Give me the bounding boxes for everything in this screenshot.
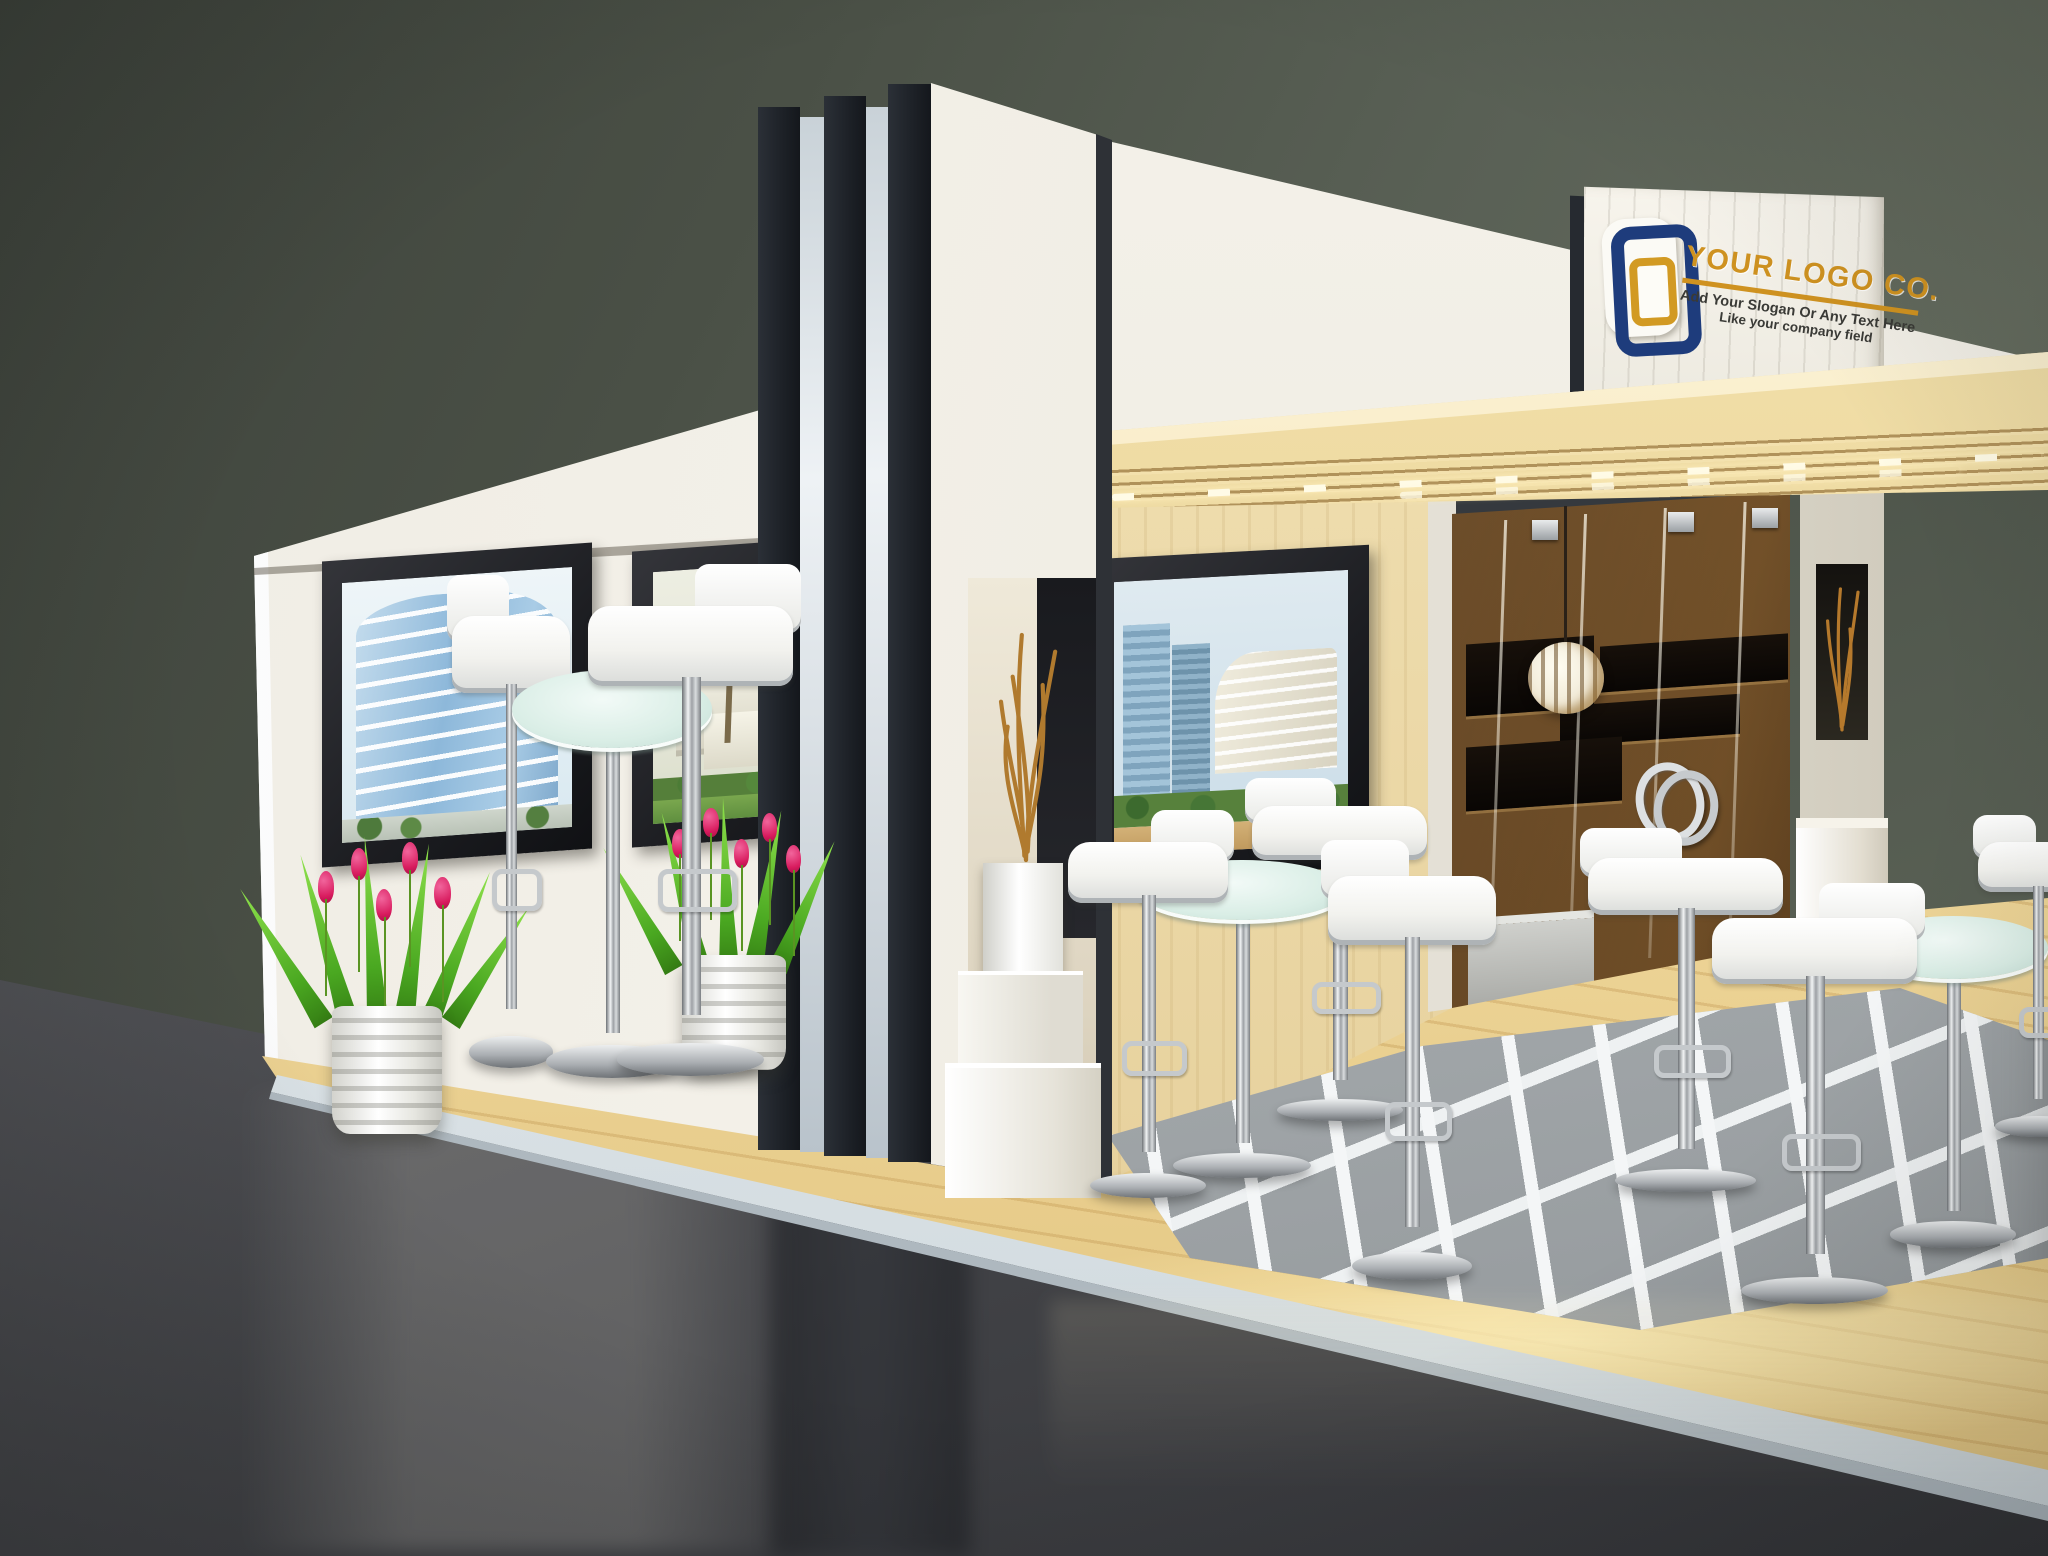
- stool-seat: [1712, 918, 1917, 984]
- tower-stripe-gap: [866, 107, 888, 1158]
- tulip: [318, 871, 334, 903]
- floor-reflection-platform: [1050, 1300, 2048, 1556]
- artwork3-tower: [1172, 643, 1210, 804]
- tulip: [402, 842, 418, 874]
- cube-vase: [983, 863, 1062, 975]
- door-hinge: [1752, 508, 1778, 528]
- stool-pedestal: [1806, 976, 1824, 1254]
- stool-footring: [1122, 1041, 1186, 1076]
- pendant-lamp-cord: [1564, 506, 1567, 648]
- company-logo-icon: [1601, 216, 1692, 352]
- ribbed-pot: [332, 1006, 441, 1134]
- pendant-lamp: [1528, 642, 1604, 714]
- bar-stool: [588, 606, 793, 1076]
- bar-stool: [1712, 918, 1917, 1304]
- bar-stool: [1068, 842, 1228, 1198]
- tulip: [376, 889, 392, 921]
- stool-base: [1995, 1116, 2048, 1137]
- artwork3-white-building: [1215, 647, 1337, 774]
- stool-base: [617, 1043, 765, 1076]
- stool-seat: [588, 606, 793, 686]
- artwork3-tower: [1123, 623, 1170, 806]
- stool-footring: [2019, 1007, 2048, 1038]
- stool-footring: [1782, 1134, 1862, 1171]
- stool-pedestal: [1678, 908, 1696, 1148]
- bar-stool: [1978, 842, 2048, 1137]
- twig-decor: [1818, 570, 1866, 736]
- stool-seat: [1068, 842, 1228, 903]
- tulip: [434, 877, 450, 909]
- stool-pedestal: [2033, 886, 2044, 1098]
- table-pedestal: [1236, 914, 1251, 1143]
- logo-gold-ring: [1629, 256, 1678, 326]
- twig-decor: [976, 590, 1076, 880]
- stool-seat: [1328, 876, 1496, 945]
- stool-base: [1741, 1277, 1889, 1304]
- stool-footring: [1385, 1102, 1452, 1140]
- right-column-niche: [1816, 564, 1868, 740]
- bar-stool: [1328, 876, 1496, 1280]
- stool-base: [1352, 1252, 1473, 1280]
- exhibition-booth-render: YOUR LOGO CO. Add Your Slogan Or Any Tex…: [0, 0, 2048, 1556]
- cabinet-black-band: [1466, 737, 1622, 812]
- tower-stripe: [888, 84, 931, 1162]
- door-hinge: [1532, 520, 1558, 540]
- stool-seat: [1588, 858, 1783, 915]
- table-pedestal: [1947, 972, 1960, 1211]
- display-step: [958, 975, 1083, 1068]
- stool-pedestal: [1142, 895, 1156, 1151]
- door-hinge: [1668, 512, 1694, 532]
- stool-seat: [1978, 842, 2048, 892]
- tulip-planter: [296, 842, 478, 1134]
- stool-pedestal: [682, 677, 700, 1015]
- tulip: [351, 848, 367, 880]
- stool-footring: [658, 869, 738, 912]
- stool-base: [1090, 1173, 1205, 1198]
- stool-pedestal: [1405, 937, 1420, 1228]
- tower-stripe: [824, 96, 866, 1156]
